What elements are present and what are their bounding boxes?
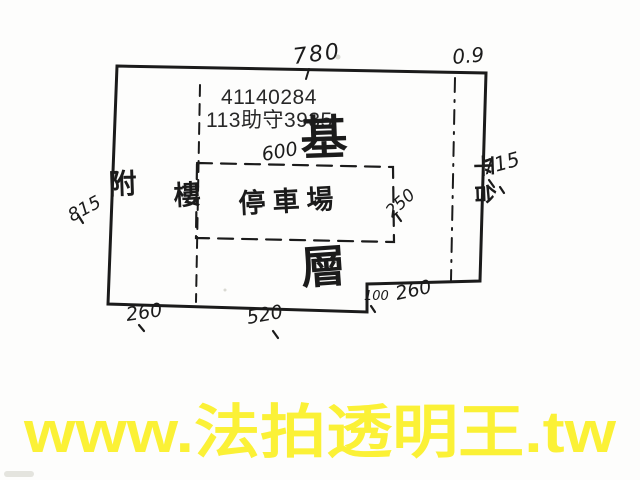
scanned-floor-plan: 41140284 113助守3935 780 0.9 基 600 附 樓 815… xyxy=(0,0,640,480)
label-layer-char: 層 xyxy=(299,239,348,295)
watermark-text: www.法拍透明王.tw xyxy=(23,400,617,465)
stamp-number-line1: 41140284 xyxy=(221,86,317,109)
label-parking: 停車場 xyxy=(238,183,342,220)
dim-top-right: 0.9 xyxy=(451,42,485,69)
dim-notch-height: 100 xyxy=(364,289,389,304)
scan-smudge xyxy=(4,471,34,477)
label-annex-char: 附 xyxy=(108,167,137,201)
label-base-char: 基 xyxy=(299,110,348,167)
scan-speck xyxy=(224,289,227,292)
label-floor-char: 樓 xyxy=(173,180,202,212)
